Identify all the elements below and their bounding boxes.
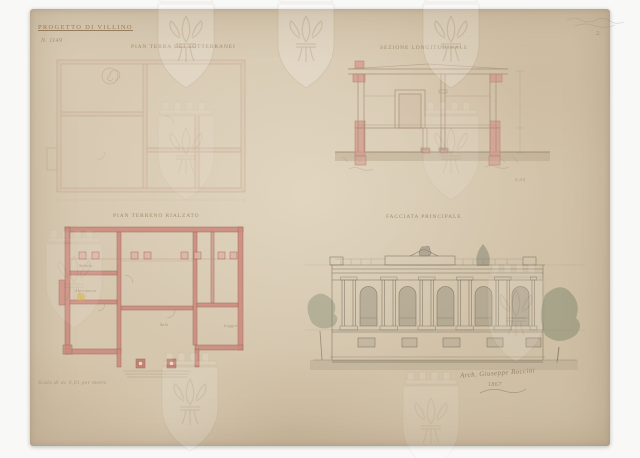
ground-floor-plan-drawing: Salotto Anticamera Sala Loggia	[55, 221, 295, 393]
corner-note: 2.	[596, 31, 601, 38]
dimension-line	[516, 71, 524, 153]
arched-windows	[360, 287, 529, 327]
basement-plan-drawing	[45, 52, 260, 207]
room-label: Loggia	[223, 324, 237, 328]
ground-wash	[335, 152, 550, 161]
corner-scribble	[565, 15, 627, 29]
elevation-label: FACCIATA PRINCIPALE	[386, 214, 462, 221]
left-tree	[308, 294, 338, 360]
basement-wall-tint	[57, 60, 245, 192]
elevation-drawing	[305, 239, 585, 384]
facade	[305, 246, 585, 370]
plan-walls	[59, 227, 243, 367]
ground-floor-plan-label: PIAN TERRENO RIALZATO	[113, 213, 200, 220]
paper-sheet: PROGETTO DI VILLINO N. 1149 PIAN TERRA D…	[30, 9, 610, 446]
project-title: PROGETTO DI VILLINO	[38, 24, 133, 31]
room-label: Sala	[160, 323, 168, 327]
signature-flourish	[478, 388, 528, 396]
room-label: Salotto	[79, 264, 93, 268]
ink-stain	[77, 293, 86, 302]
dimension-note: 6,04	[515, 177, 525, 184]
basement-plan-label: PIAN TERRA DEI SOTTERRANEI	[131, 44, 236, 51]
right-tree	[541, 287, 580, 363]
portico	[123, 359, 191, 377]
scanned-drawing-sheet: PROGETTO DI VILLINO N. 1149 PIAN TERRA D…	[0, 0, 640, 458]
sectioned-walls	[353, 61, 502, 165]
basement-storey	[330, 330, 545, 357]
section-drawing	[335, 49, 565, 204]
pediment-ornament	[419, 246, 431, 256]
scale-note: Scala di m. 0,01 per metro	[38, 380, 107, 387]
room-label: Anticamera	[74, 289, 97, 293]
file-number: N. 1149	[41, 38, 62, 45]
